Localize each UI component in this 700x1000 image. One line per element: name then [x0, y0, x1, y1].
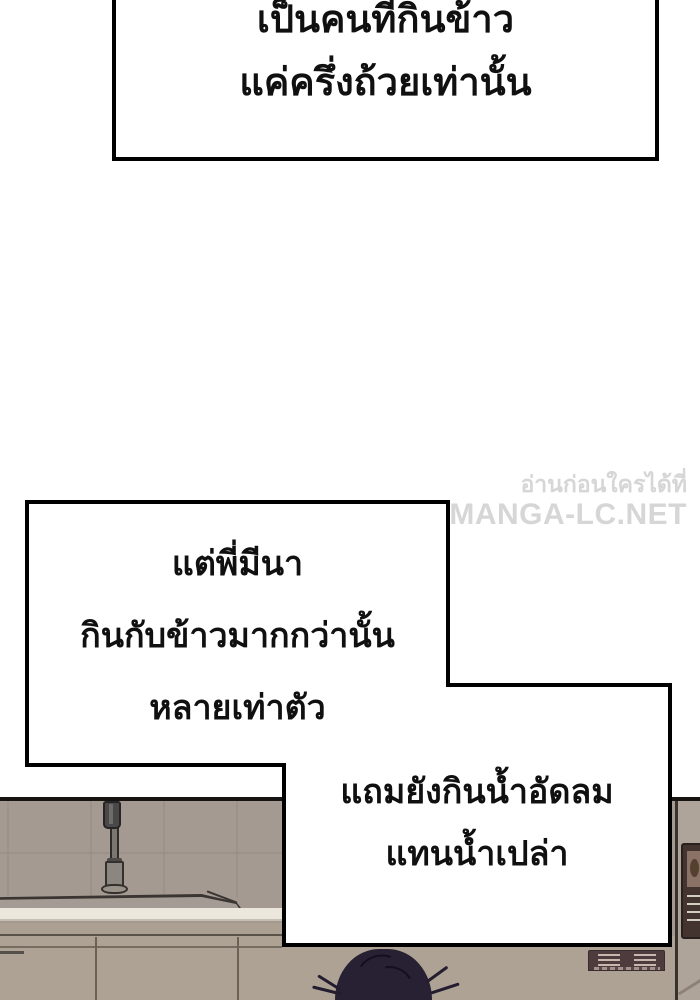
countertop [0, 908, 282, 921]
poster-portrait [690, 859, 699, 877]
appliance-control-panel [588, 950, 665, 971]
tile-line [7, 801, 9, 897]
bubble-line: กินกับข้าวมากกว่านั้น [80, 600, 395, 672]
bubble-line: แถมยังกินน้ำอัดลม [340, 761, 613, 823]
faucet-base [101, 884, 128, 894]
tile-line [90, 801, 92, 897]
panel-buttons [598, 954, 620, 966]
cabinet-divider [237, 937, 239, 1000]
watermark-thai-text: อ่านก่อนใครได้ที่ [449, 470, 687, 498]
poster-text-line [687, 903, 700, 905]
bubble-line: แทนน้ำเปล่า [385, 823, 568, 885]
tile-line [0, 852, 282, 854]
speech-bubble-bottom-text: แถมยังกินน้ำอัดลม แทนน้ำเปล่า [282, 683, 672, 947]
watermark: อ่านก่อนใครได้ที่ MANGA-LC.NET [449, 470, 687, 532]
poster-photo [687, 851, 700, 887]
comic-page: อ่านก่อนใครได้ที่ MANGA-LC.NET เป็นคนที่… [0, 0, 700, 1000]
bubble-line: เป็นคนที่กินข้าว [257, 0, 514, 52]
poster-text-line [687, 895, 700, 897]
bubble-line: แค่ครึ่งถ้วยเท่านั้น [239, 52, 531, 115]
tile-line [236, 801, 238, 897]
cabinet-divider [95, 937, 97, 1000]
tile-line [163, 801, 165, 897]
cabinet-groove [0, 946, 282, 948]
panel-label-strip [594, 967, 660, 970]
wall-poster [681, 843, 700, 939]
faucet-highlight [109, 804, 113, 824]
panel-buttons [634, 954, 656, 966]
fridge-edge-line [675, 801, 678, 1000]
cabinet-handle-mark [0, 951, 24, 954]
bubble-line: แต่พี่มีนา [172, 528, 303, 600]
watermark-site-name: MANGA-LC.NET [449, 498, 687, 532]
speech-bubble-top-text: เป็นคนที่กินข้าว แค่ครึ่งถ้วยเท่านั้น [112, 0, 659, 161]
poster-text-line [687, 911, 700, 913]
poster-text-line [687, 919, 700, 921]
